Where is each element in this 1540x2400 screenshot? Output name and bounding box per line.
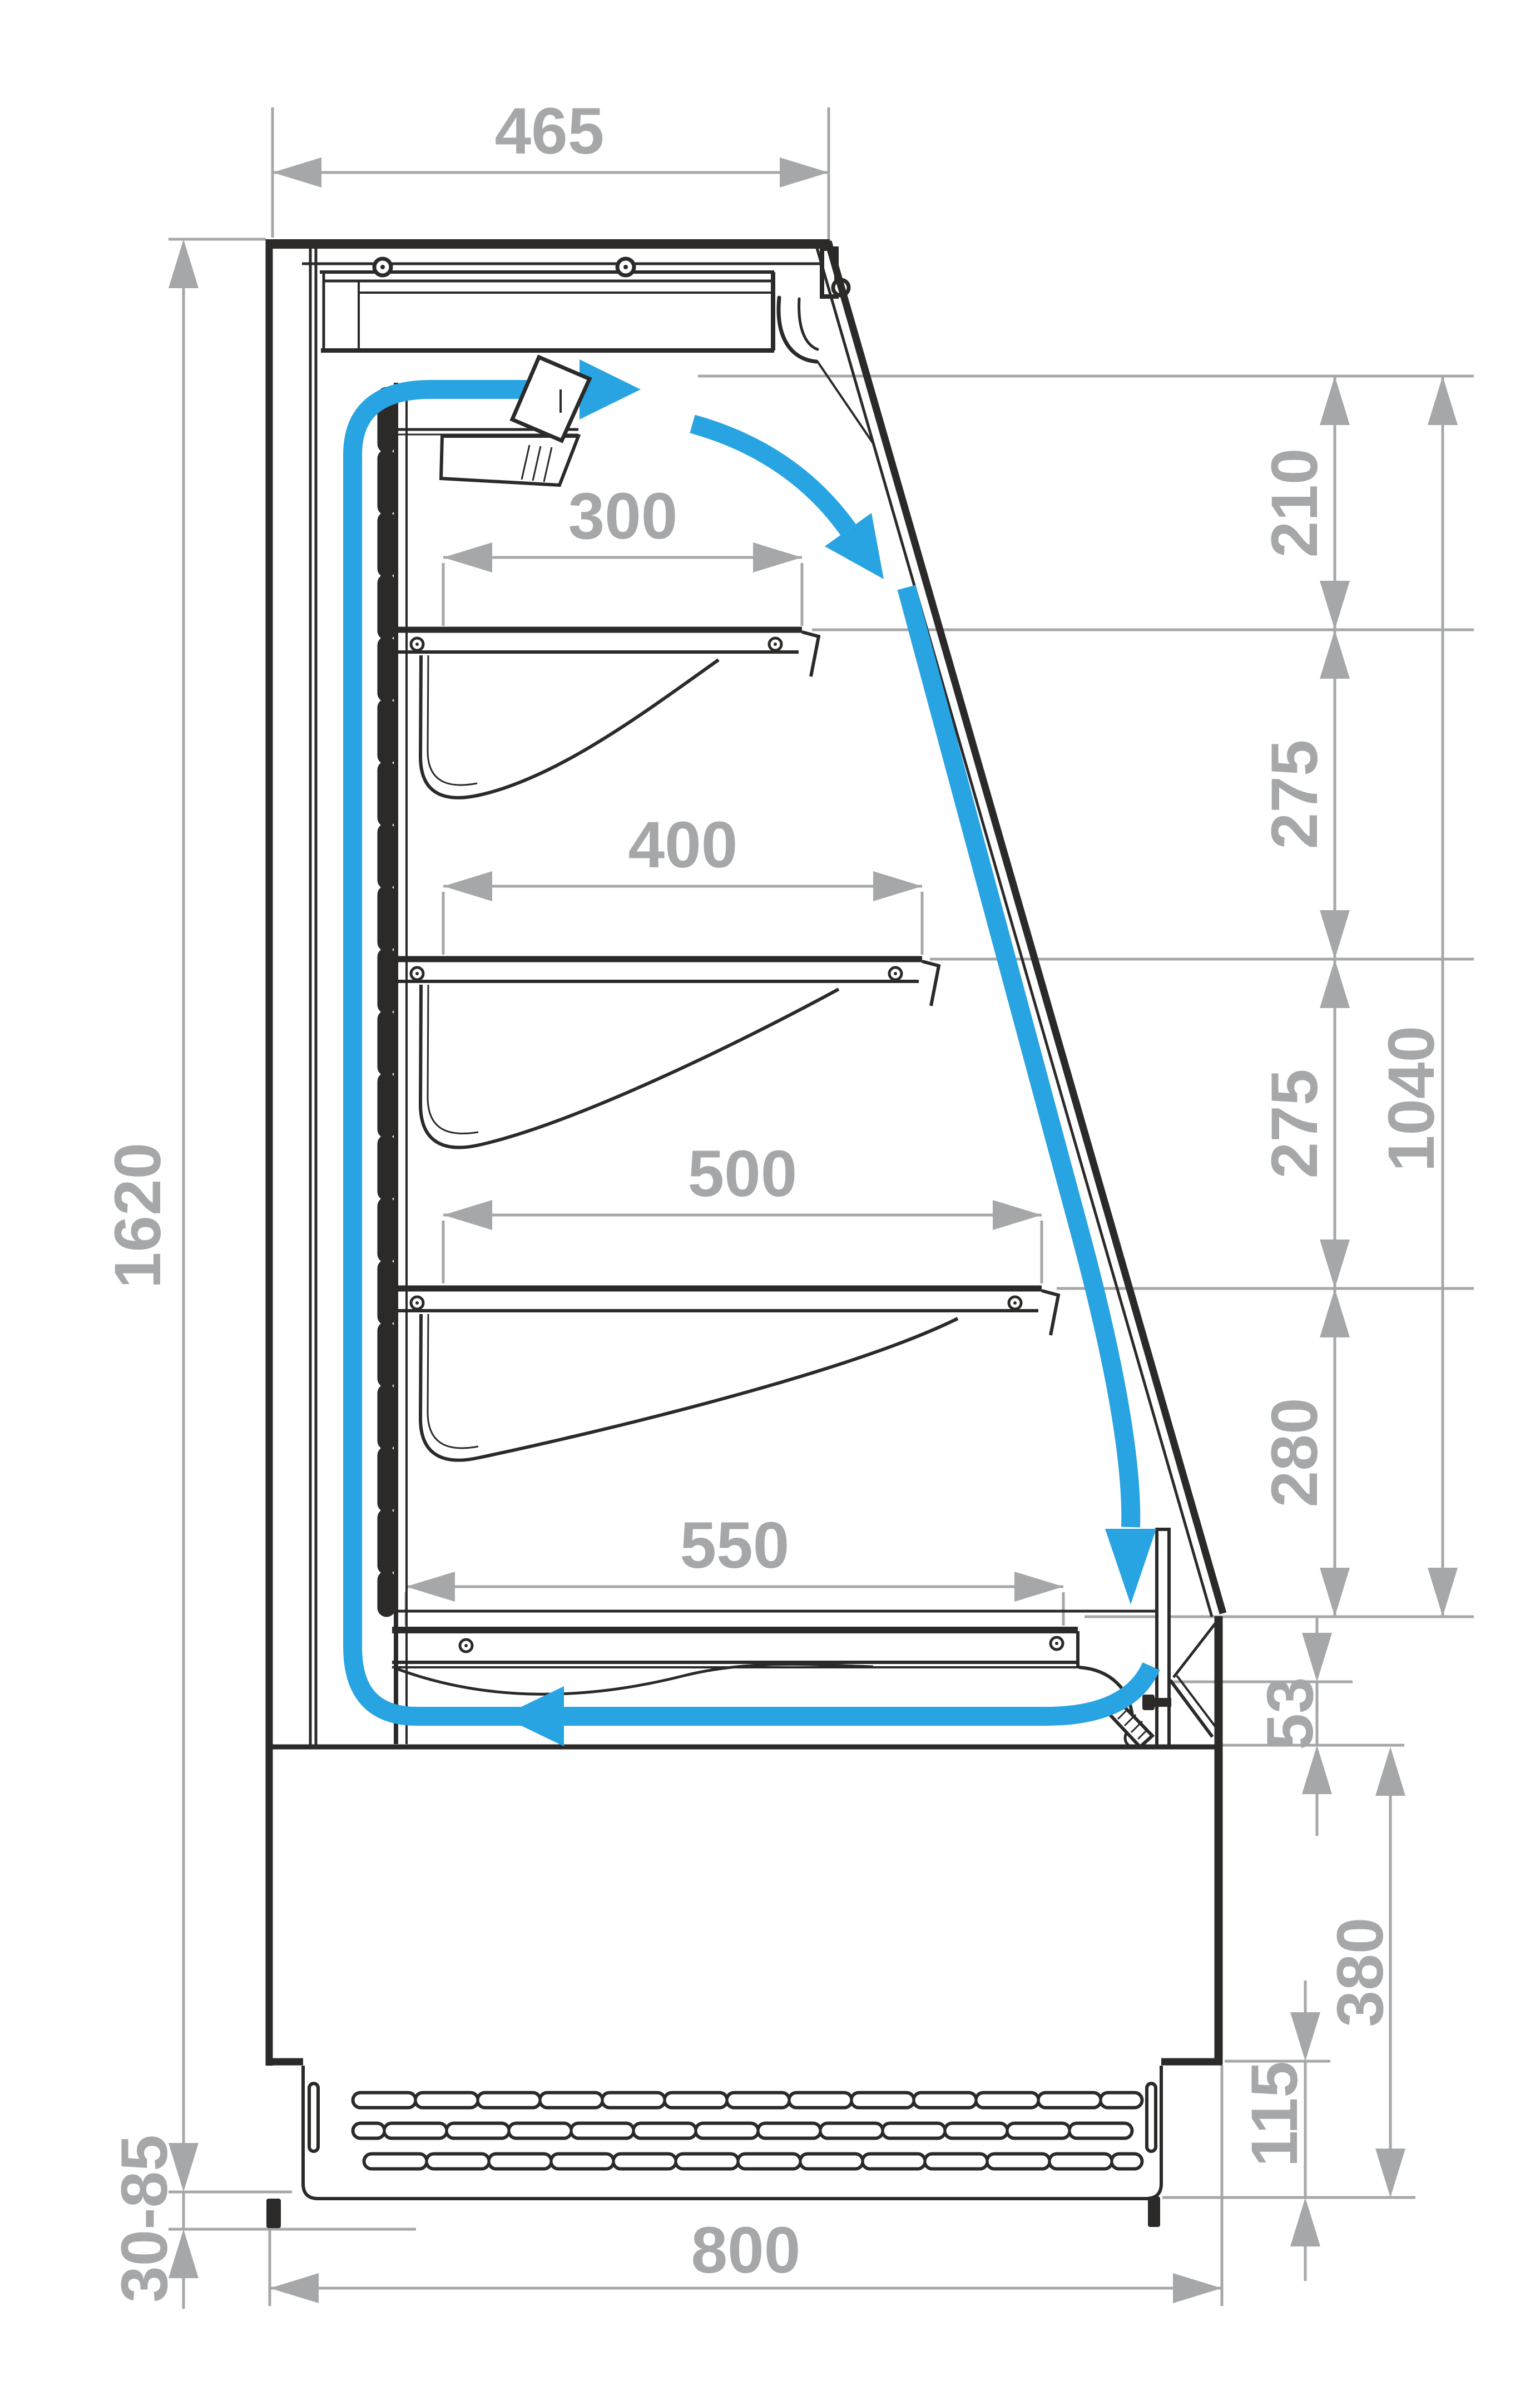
dim-adjustable-feet-label: 30-85 — [108, 2135, 181, 2303]
shelf-bracket — [420, 655, 719, 798]
foot — [266, 2199, 281, 2228]
dim-shelf-300-label: 300 — [568, 480, 678, 553]
airflow-discharge-path — [692, 424, 848, 530]
airflow-curtain-path — [907, 587, 1131, 1527]
base — [266, 1616, 1222, 2064]
shelf-300 — [392, 630, 819, 798]
dim-spacing-210-label: 210 — [1258, 448, 1331, 558]
dim-shelf-300: 300 — [443, 480, 802, 626]
shelf-bracket — [420, 985, 839, 1148]
dim-front-gap-label: 53 — [1254, 1677, 1327, 1750]
display-case-diagram: 465 1620 30-85 800 — [0, 0, 1540, 2400]
left-wall — [269, 239, 316, 2066]
deck-bracket — [396, 1665, 873, 1695]
dim-shelf-550-label: 550 — [680, 1509, 790, 1582]
dim-shelf-spacings: 210 275 275 280 — [1258, 376, 1350, 1617]
airflow-arrowhead-curtain — [1105, 1529, 1156, 1604]
air-curtain-riser — [1157, 1529, 1169, 1747]
dim-spacing-275a-label: 275 — [1258, 740, 1331, 850]
vent-handle-slot — [309, 2083, 318, 2151]
shelf-front-lip — [922, 961, 939, 1006]
dim-shelf-550: 550 — [406, 1509, 1063, 1626]
dim-base-front-height-label: 380 — [1324, 1918, 1397, 2027]
glass-front — [817, 241, 1223, 1617]
shelf-400 — [392, 959, 939, 1148]
dim-shelf-400-label: 400 — [628, 808, 738, 882]
dim-opening-height: 1040 — [1375, 376, 1458, 1617]
canopy-roof — [266, 239, 830, 249]
intake-grille — [1170, 1680, 1212, 1737]
air-deflector-wedge — [441, 436, 578, 485]
dim-reference-lines — [698, 376, 1474, 1617]
dim-shelf-500: 500 — [443, 1137, 1042, 1283]
riser-bolt — [1142, 1695, 1155, 1710]
drawing-canvas: 465 1620 30-85 800 — [0, 0, 1540, 2400]
bottom-deck — [392, 1611, 1160, 1747]
dim-spacing-275b-label: 275 — [1258, 1069, 1331, 1179]
dim-canopy-depth: 465 — [273, 95, 829, 248]
vent-panel — [266, 2066, 1161, 2228]
foot — [1148, 2196, 1160, 2227]
shelf-front-lip — [802, 632, 819, 676]
dim-base-depth-label: 800 — [691, 2214, 801, 2287]
dim-vent-panel-height-label: 115 — [1238, 2061, 1311, 2167]
dim-shelf-400: 400 — [443, 808, 922, 955]
airflow-arrowhead-top — [580, 359, 641, 419]
shelf-front-lip — [1042, 1291, 1058, 1335]
dim-opening-height-label: 1040 — [1375, 1026, 1448, 1172]
dim-canopy-depth-label: 465 — [495, 95, 605, 168]
canopy-hook — [779, 298, 816, 362]
shelf-500 — [392, 1288, 1058, 1460]
dim-total-height: 1620 — [101, 239, 292, 2192]
dim-total-height-label: 1620 — [101, 1143, 175, 1289]
dim-vent-panel-height: 115 — [1225, 1981, 1330, 2281]
vent-handle-slot — [1147, 2083, 1156, 2151]
shelf-bracket — [420, 1314, 958, 1460]
riser-bolt-shaft — [1155, 1698, 1171, 1707]
dim-spacing-280-label: 280 — [1258, 1398, 1331, 1508]
dim-shelf-500-label: 500 — [688, 1137, 798, 1211]
dimension-annotations: 465 1620 30-85 800 — [101, 95, 1474, 2309]
back-panel — [387, 383, 407, 1744]
